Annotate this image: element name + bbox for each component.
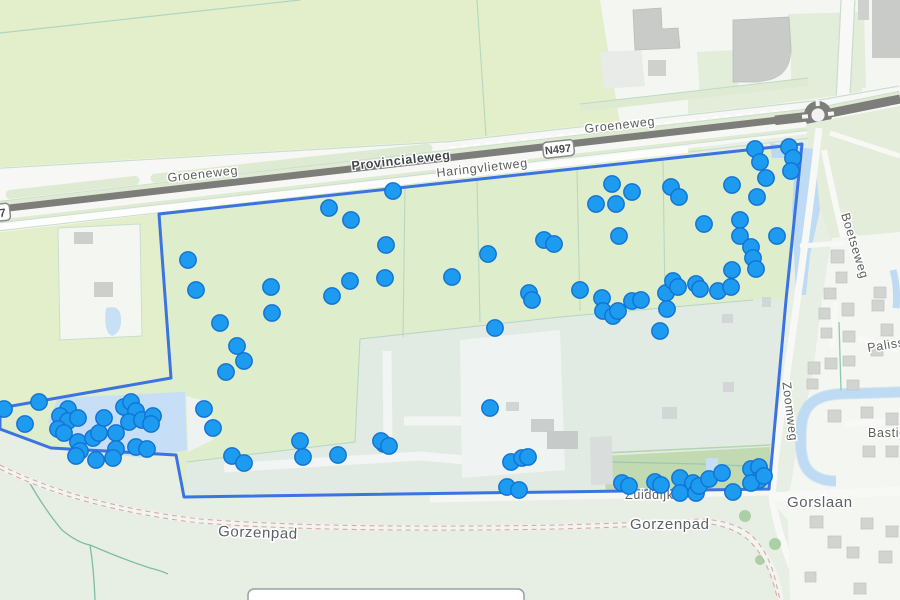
svg-text:Bastio: Bastio <box>868 426 900 440</box>
svg-text:Gorzenpad: Gorzenpad <box>218 523 298 543</box>
svg-text:Gorslaan: Gorslaan <box>787 494 853 511</box>
svg-text:Gorzenpad: Gorzenpad <box>630 516 710 533</box>
